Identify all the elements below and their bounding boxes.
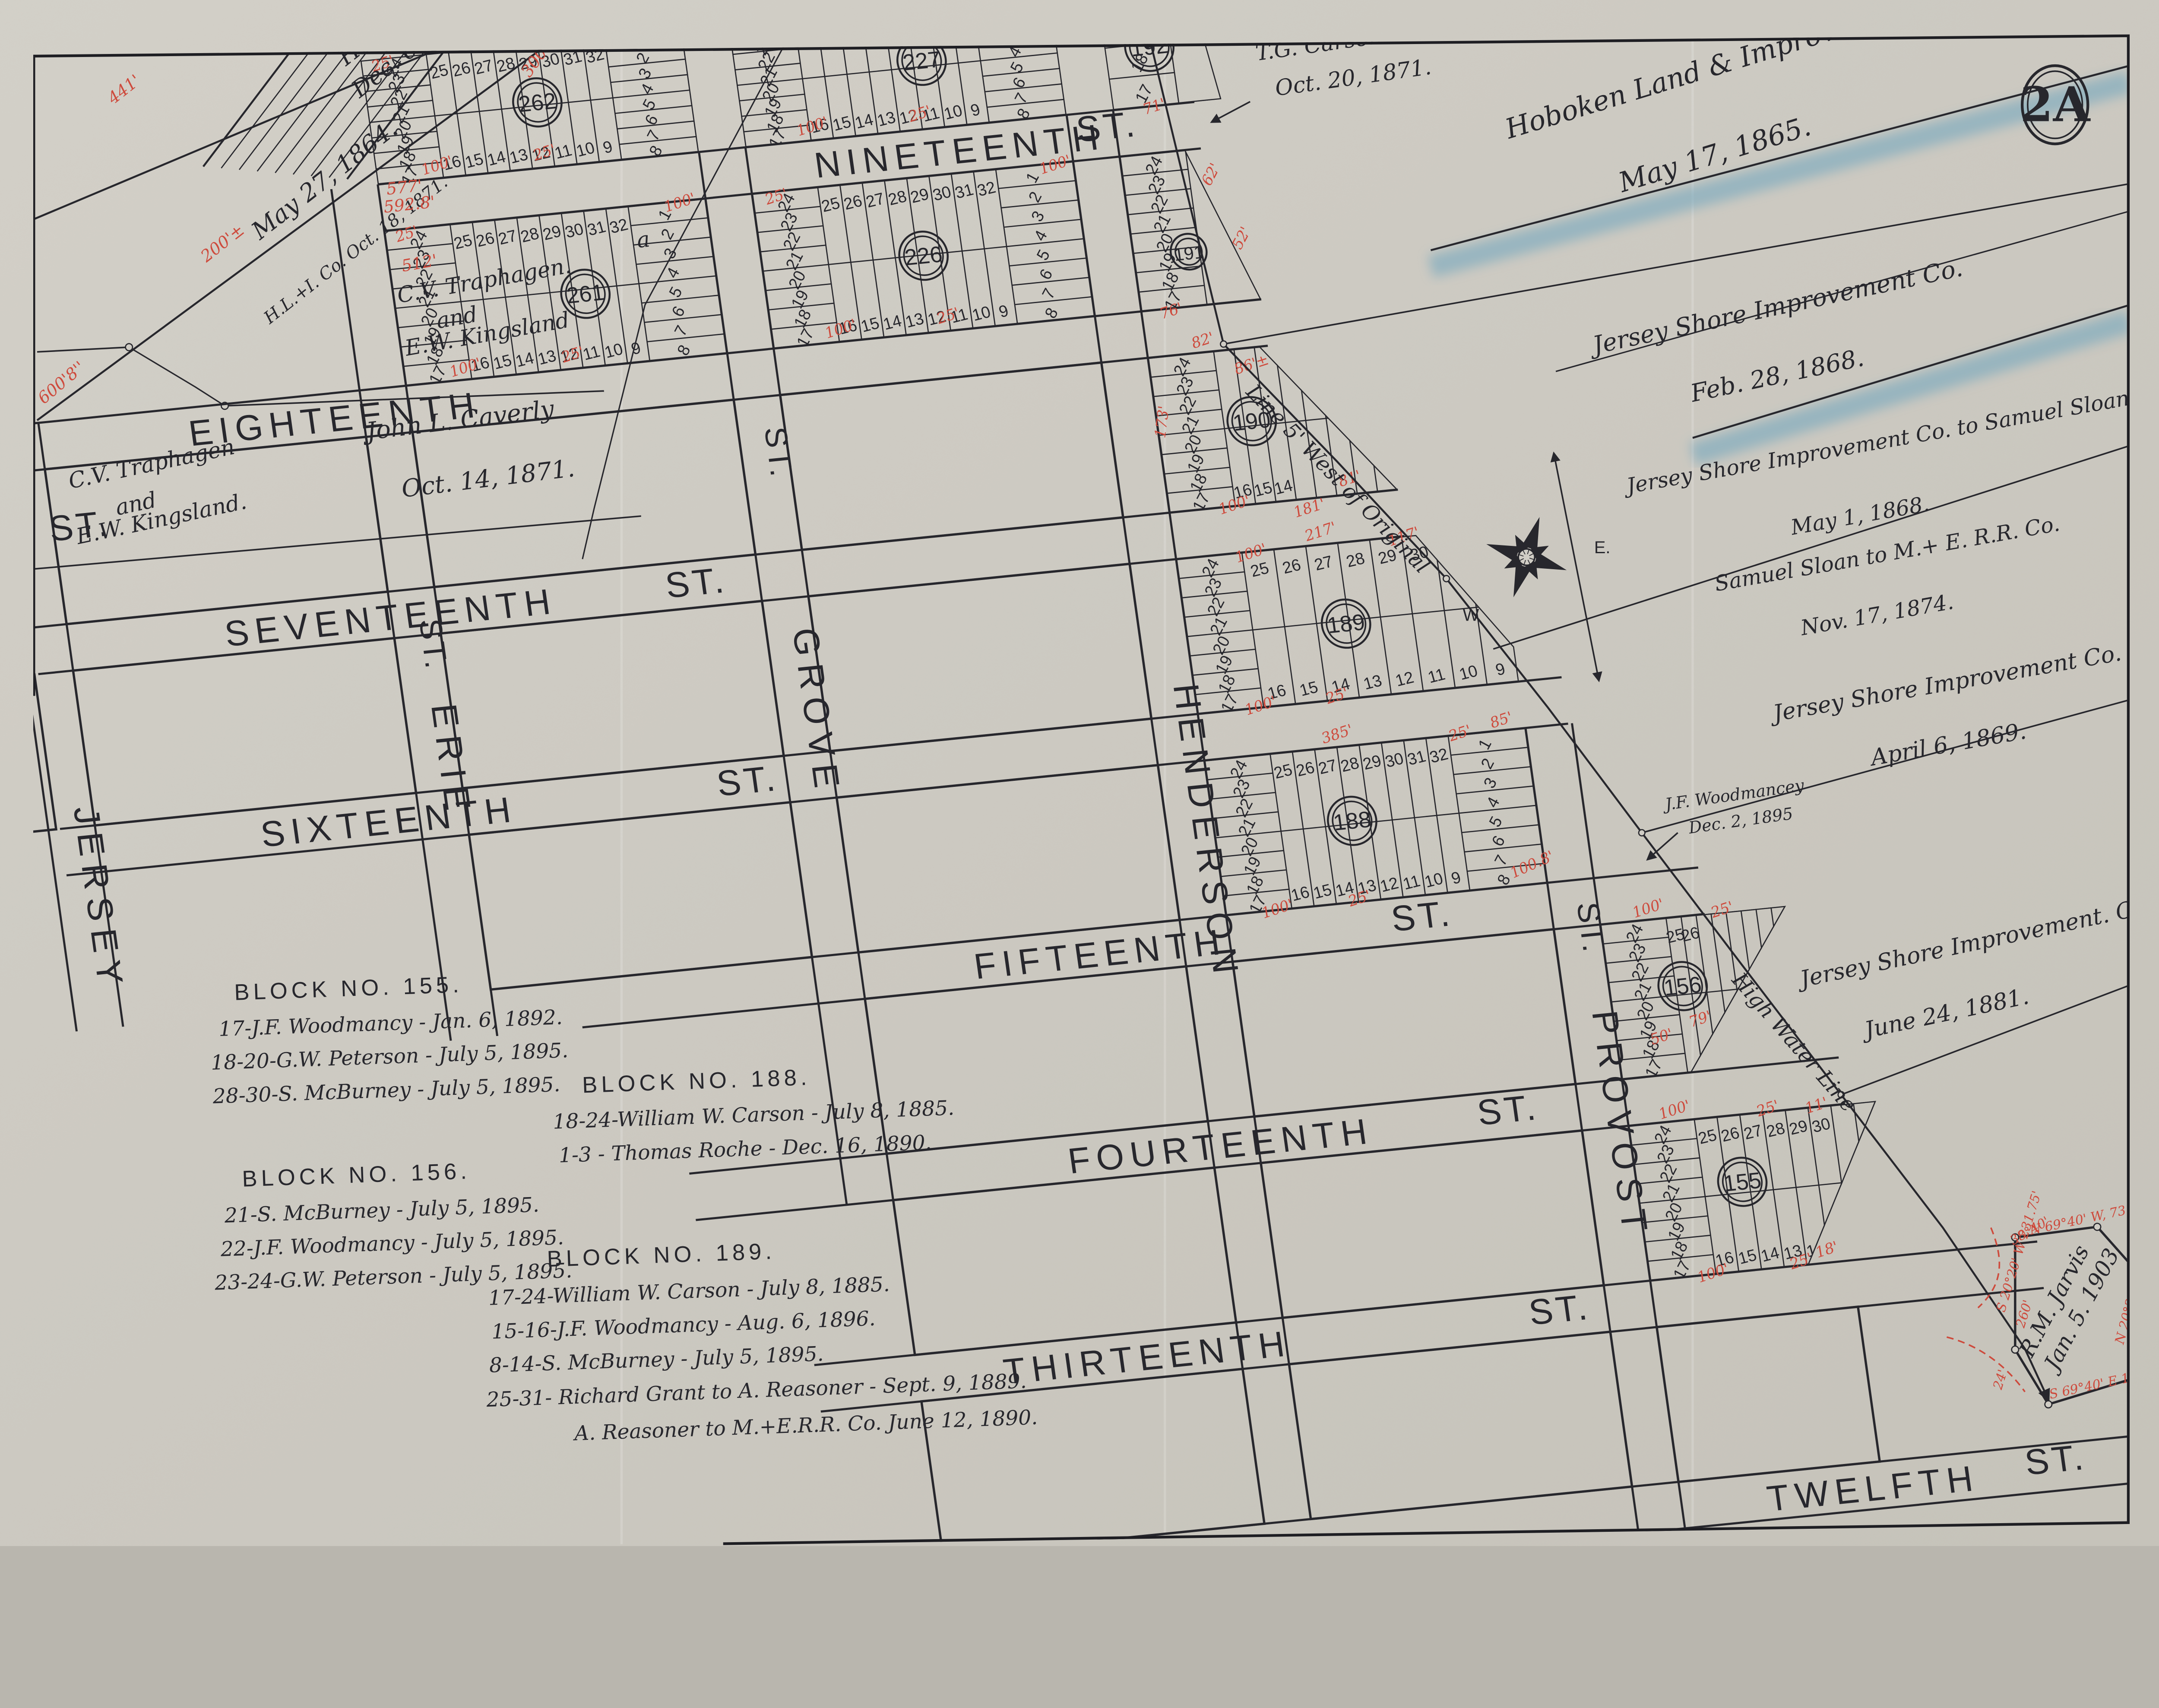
- map-canvas: NINETEENTHST.EIGHTEENTHST.SEVENTEENTHST.…: [0, 0, 2159, 1546]
- map-sheet: NINETEENTHST.EIGHTEENTHST.SEVENTEENTHST.…: [0, 0, 2159, 1546]
- cloth-texture-overlay: [0, 0, 2159, 1546]
